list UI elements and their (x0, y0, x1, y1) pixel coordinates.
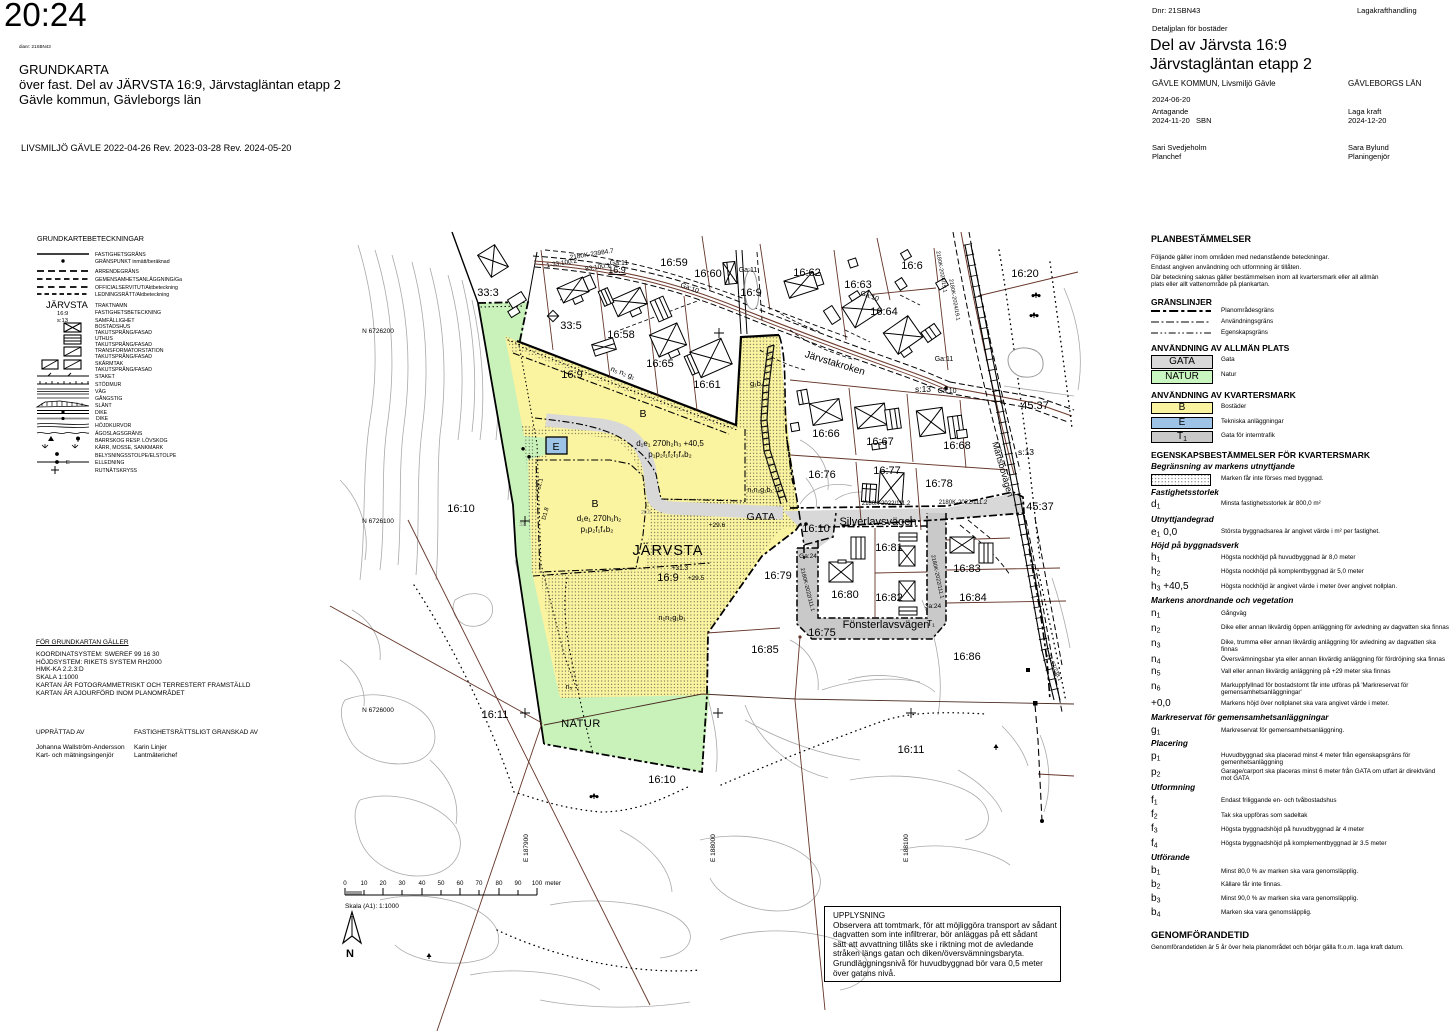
svg-text:Ga:11: Ga:11 (739, 267, 758, 274)
svg-text:JÄRVSTA: JÄRVSTA (633, 542, 704, 559)
svg-text:2180K-2022/111.2: 2180K-2022/111.2 (862, 501, 911, 507)
svg-text:s:13: s:13 (1018, 447, 1034, 457)
svg-text:VÄG: VÄG (95, 388, 106, 395)
svg-text:Fönsterlavsvägen: Fönsterlavsvägen (843, 619, 930, 631)
svg-text:p₁p₂f₁f₂f₃f₄b₂: p₁p₂f₁f₂f₃f₄b₂ (648, 450, 691, 459)
svg-text:40: 40 (419, 880, 426, 887)
svg-text:16:75: 16:75 (808, 627, 836, 639)
svg-text:GRÄNSPUNKT inmätt/beräknad: GRÄNSPUNKT inmätt/beräknad (95, 258, 170, 265)
svg-text:29.6: 29.6 (641, 510, 651, 516)
svg-text:60: 60 (457, 880, 464, 887)
svg-text:E 188000: E 188000 (710, 834, 717, 862)
svg-text:16:9: 16:9 (57, 311, 68, 317)
svg-text:OFFICIALSERVITUT/Aktbeteckning: OFFICIALSERVITUT/Aktbeteckning (95, 285, 178, 291)
svg-text:0: 0 (343, 880, 347, 887)
svg-text:30: 30 (399, 880, 406, 887)
svg-text:N 6726000: N 6726000 (362, 707, 394, 714)
svg-text:16:9: 16:9 (740, 287, 761, 299)
svg-text:16:9: 16:9 (608, 265, 626, 275)
svg-text:32: 32 (519, 522, 525, 528)
svg-text:16:59: 16:59 (660, 257, 688, 269)
svg-text:Järvstakroken: Järvstakroken (803, 349, 866, 378)
svg-text:16:61: 16:61 (693, 379, 721, 391)
svg-text:16:9: 16:9 (561, 369, 582, 381)
svg-text:d₁e₁ 270h₂h₃ +40,5: d₁e₁ 270h₂h₃ +40,5 (636, 439, 704, 448)
svg-text:n₅: n₅ (566, 684, 573, 691)
svg-text:B: B (639, 408, 646, 420)
svg-text:JÄRVSTA: JÄRVSTA (46, 300, 89, 311)
svg-text:B: B (591, 498, 598, 510)
svg-text:BELYSNINGSSTOLPE/ELSTOLPE: BELYSNINGSSTOLPE/ELSTOLPE (95, 453, 177, 459)
svg-text:10: 10 (361, 880, 368, 887)
svg-text:16:11: 16:11 (482, 709, 509, 721)
svg-text:+29.6: +29.6 (709, 522, 726, 529)
svg-text:16:82: 16:82 (875, 592, 903, 604)
svg-text:16:9: 16:9 (657, 572, 678, 584)
svg-text:n₁n₂g₁b₁: n₁n₂g₁b₁ (658, 613, 686, 622)
svg-text:100: 100 (532, 880, 543, 887)
svg-text:FASTIGHETSBETECKNING: FASTIGHETSBETECKNING (95, 310, 161, 316)
svg-text:LEDNINGSRÄTT/Aktbeteckning: LEDNINGSRÄTT/Aktbeteckning (95, 291, 169, 298)
svg-text:33:5: 33:5 (560, 320, 581, 332)
svg-text:RUTNÄTSKRYSS: RUTNÄTSKRYSS (95, 467, 138, 474)
svg-text:DIKE: DIKE (96, 416, 109, 422)
svg-text:20: 20 (380, 880, 387, 887)
svg-text:16:85: 16:85 (751, 644, 779, 656)
svg-text:16:20: 16:20 (1011, 268, 1039, 280)
svg-text:70: 70 (476, 880, 483, 887)
svg-text:16:10: 16:10 (648, 774, 676, 786)
svg-text:45:37: 45:37 (1021, 400, 1049, 412)
svg-text:TAKUTSPRÅNG/FASAD: TAKUTSPRÅNG/FASAD (95, 341, 152, 348)
svg-text:E: E (66, 460, 70, 466)
svg-text:TRAKTNAMN: TRAKTNAMN (95, 303, 128, 309)
svg-text:FASTIGHETSGRÄNS: FASTIGHETSGRÄNS (95, 251, 146, 258)
svg-text:SAMFÄLLIGHET: SAMFÄLLIGHET (95, 317, 135, 324)
svg-text:ARRENDEGRÄNS: ARRENDEGRÄNS (95, 268, 139, 275)
svg-text:16:66: 16:66 (812, 428, 840, 440)
svg-text:16:80: 16:80 (831, 589, 859, 601)
svg-text:16:64: 16:64 (870, 306, 898, 318)
svg-text:E 187900: E 187900 (523, 834, 530, 862)
svg-text:16:67: 16:67 (866, 436, 894, 448)
svg-text:Ga:11: Ga:11 (935, 356, 954, 363)
svg-text:16:65: 16:65 (646, 358, 674, 370)
svg-text:16:60: 16:60 (694, 268, 722, 280)
svg-text:16:77: 16:77 (873, 465, 901, 477)
svg-text:50: 50 (438, 880, 445, 887)
svg-text:16:79: 16:79 (764, 570, 792, 582)
svg-text:N 6726100: N 6726100 (362, 518, 394, 525)
svg-text:16:11: 16:11 (898, 744, 925, 756)
svg-text:BARRSKOG RESP. LÖVSKOG: BARRSKOG RESP. LÖVSKOG (95, 437, 168, 444)
svg-text:16:58: 16:58 (607, 329, 635, 341)
svg-text:16:6: 16:6 (901, 260, 922, 272)
svg-text:Ga:24: Ga:24 (799, 553, 817, 560)
svg-text:KÄRR, MOSSE, SANKMARK: KÄRR, MOSSE, SANKMARK (95, 444, 164, 451)
svg-text:ÄGOSLAGSGRÄNS: ÄGOSLAGSGRÄNS (95, 430, 143, 437)
svg-text:16:86: 16:86 (953, 651, 981, 663)
svg-text:16:78: 16:78 (925, 478, 953, 490)
svg-text:16:68: 16:68 (943, 440, 971, 452)
svg-text:TAKUTSPRÅNG/FASAD: TAKUTSPRÅNG/FASAD (95, 353, 152, 360)
svg-text:HÖJDKURVOR: HÖJDKURVOR (95, 422, 131, 429)
svg-text:GATA: GATA (746, 511, 775, 523)
svg-text:TAKUTSPRÅNG/FASAD: TAKUTSPRÅNG/FASAD (95, 366, 152, 373)
svg-text:T₁: T₁ (927, 619, 935, 628)
svg-text:33:3: 33:3 (477, 287, 498, 299)
svg-text:SKÄRMTAK: SKÄRMTAK (95, 360, 124, 367)
svg-text:16:84: 16:84 (959, 592, 987, 604)
svg-text:STÖDMUR: STÖDMUR (95, 381, 121, 388)
svg-text:90: 90 (515, 880, 522, 887)
svg-text:16:76: 16:76 (808, 469, 836, 481)
svg-text:Skala (A1): 1:1000: Skala (A1): 1:1000 (345, 903, 399, 910)
svg-text:E: E (552, 441, 559, 453)
svg-text:16:81: 16:81 (875, 542, 903, 554)
svg-text:16:83: 16:83 (953, 563, 981, 575)
svg-text:n₁n₂g₁b₁ .1: n₁n₂g₁b₁ .1 (747, 487, 780, 494)
svg-text:16:62: 16:62 (793, 267, 821, 279)
svg-text:Silverlavsvägen: Silverlavsvägen (839, 516, 916, 528)
svg-text:STAKET: STAKET (95, 374, 116, 380)
svg-text:NATUR: NATUR (561, 718, 601, 730)
svg-text:N 6726200: N 6726200 (362, 328, 394, 335)
svg-text:meter: meter (545, 880, 561, 887)
svg-text:TAKUTSPRÅNG/FASAD: TAKUTSPRÅNG/FASAD (95, 329, 152, 336)
svg-text:SLÄNT: SLÄNT (95, 402, 113, 409)
svg-text:16:10: 16:10 (802, 523, 830, 535)
svg-text:p₁p₂f₁f₄b₂: p₁p₂f₁f₄b₂ (581, 525, 614, 534)
svg-text:45:37: 45:37 (1026, 501, 1054, 513)
svg-text:3a:24: 3a:24 (925, 603, 942, 610)
svg-text:2180K-2024/19.1: 2180K-2024/19.1 (947, 279, 960, 322)
svg-text:16:63: 16:63 (844, 279, 872, 291)
svg-text:Ga:10: Ga:10 (937, 388, 956, 395)
svg-text:16:10: 16:10 (447, 503, 475, 515)
svg-text:g₁b₄: g₁b₄ (750, 379, 764, 388)
svg-text:N: N (346, 948, 354, 960)
svg-text:80: 80 (496, 880, 503, 887)
svg-text:2180K-2022/111.2: 2180K-2022/111.2 (939, 500, 988, 506)
svg-text:+29.5: +29.5 (688, 575, 705, 582)
svg-text:GEMENSAMHETSANLÄGGNING/Ga: GEMENSAMHETSANLÄGGNING/Ga (95, 276, 182, 283)
svg-text:+31.3: +31.3 (672, 565, 689, 572)
svg-text:ELLEDNING: ELLEDNING (95, 460, 124, 466)
svg-text:d₁e₁ 270h₁h₂: d₁e₁ 270h₁h₂ (577, 514, 622, 523)
svg-text:GÅNGSTIG: GÅNGSTIG (95, 395, 122, 402)
svg-text:E 188100: E 188100 (903, 834, 910, 862)
svg-text:GRUNDKARTEBETECKNINGAR: GRUNDKARTEBETECKNINGAR (37, 234, 144, 243)
svg-text:s:13: s:13 (915, 384, 931, 394)
